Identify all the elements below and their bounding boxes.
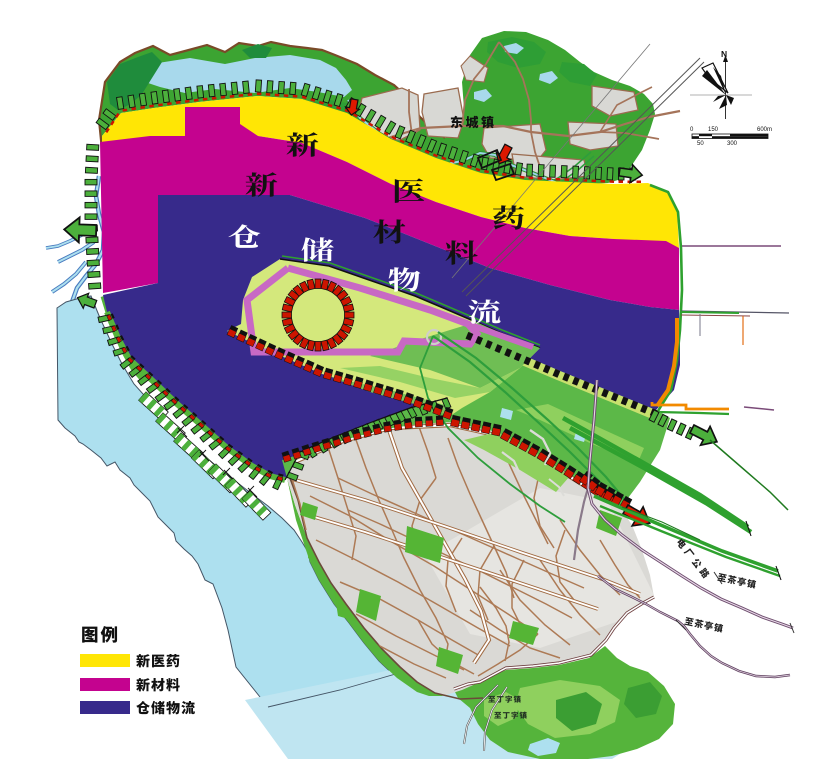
svg-text:300: 300: [727, 141, 738, 147]
svg-text:150: 150: [708, 127, 719, 133]
svg-text:600m: 600m: [757, 127, 772, 133]
svg-text:50: 50: [697, 141, 704, 147]
svg-text:N: N: [721, 49, 727, 59]
